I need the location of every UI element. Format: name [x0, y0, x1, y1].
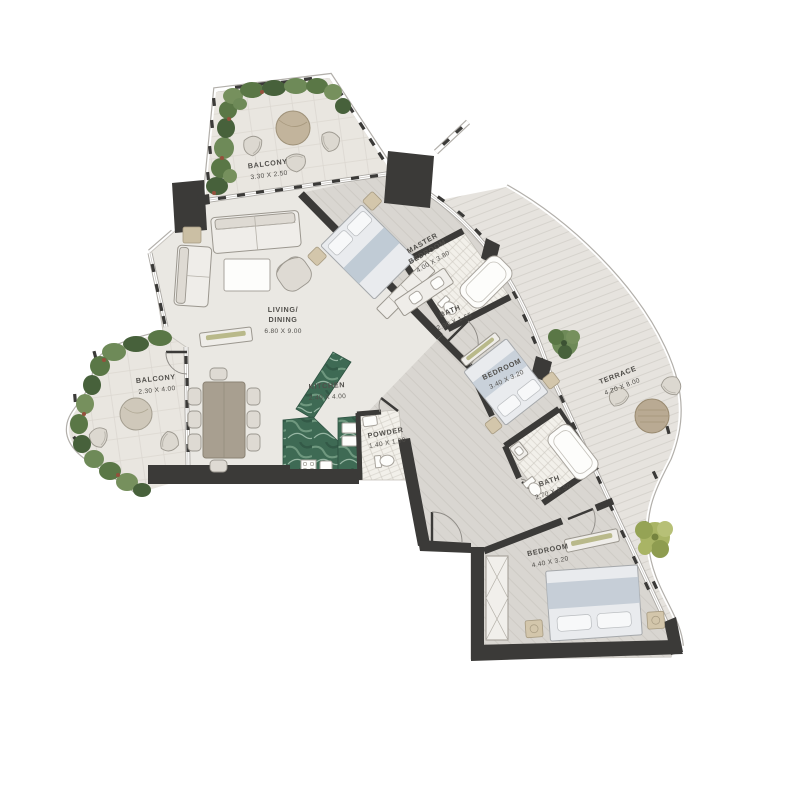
wall-powder-left	[358, 413, 360, 480]
bedroom3-nightstand-left	[525, 620, 543, 638]
bedroom3-nightstand-right	[647, 611, 665, 629]
kitchen-appliance-2	[342, 436, 357, 446]
wall-kitchen-bottom	[290, 469, 359, 484]
coffee-table	[224, 259, 270, 291]
floor-plan-svg: BALCONY 3.30 X 2.50 LIVING/ DINING 6.80 …	[0, 0, 800, 800]
kitchen-name: KITCHEN	[308, 380, 345, 391]
column-master-top	[384, 151, 434, 208]
living-name-2: DINING	[268, 315, 297, 324]
living-name-1: LIVING/	[268, 305, 299, 314]
terrace-tree-bottom	[635, 521, 673, 558]
bedroom3-wardrobe	[486, 556, 508, 640]
living-dims: 6.80 X 9.00	[264, 328, 301, 335]
floor-plan: BALCONY 3.30 X 2.50 LIVING/ DINING 6.80 …	[0, 0, 800, 800]
kitchen-appliance-1	[342, 423, 357, 433]
sofa-left	[174, 245, 212, 307]
sofa-top	[211, 210, 302, 254]
wall-powder-top	[357, 412, 381, 414]
label-living-dining: LIVING/ DINING 6.80 X 9.00	[264, 305, 301, 335]
powder-sink	[362, 415, 377, 427]
column-top-left	[172, 180, 207, 233]
wall-balcony-corner	[197, 194, 210, 206]
wall-bedroom3-left	[471, 547, 484, 659]
side-table	[183, 227, 201, 243]
